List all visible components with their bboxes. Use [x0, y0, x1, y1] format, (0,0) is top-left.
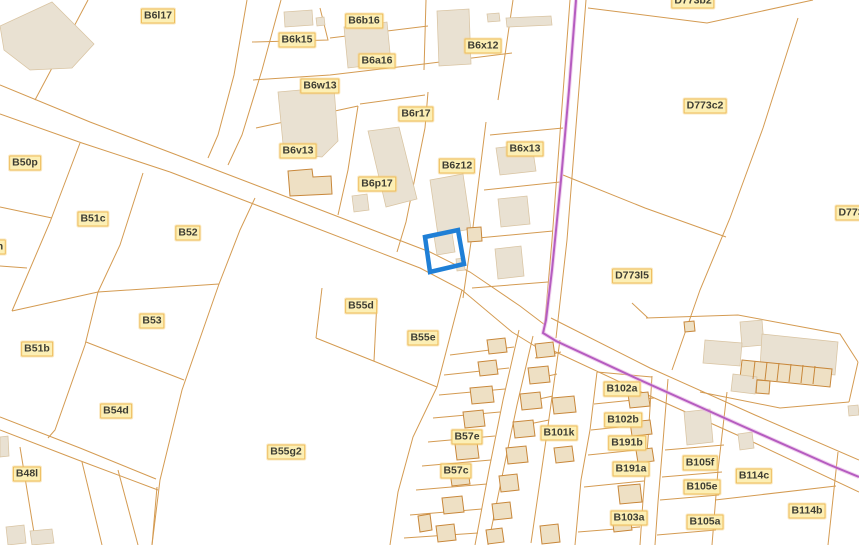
parcel-label-B6w13[interactable]: B6w13 — [300, 79, 339, 94]
parcel-label-B114b[interactable]: B114b — [789, 504, 826, 519]
parcel-label-B105f[interactable]: B105f — [683, 456, 718, 471]
parcel-boundary-line — [0, 266, 27, 268]
parcel-label-B6a16[interactable]: B6a16 — [359, 54, 396, 69]
parcel-label-B6v13[interactable]: B6v13 — [280, 144, 317, 159]
building-footprint — [684, 321, 695, 332]
building-footprint — [513, 420, 535, 438]
building-footprint — [316, 17, 325, 26]
parcel-boundary-line — [849, 362, 858, 402]
parcel-boundary-line — [478, 231, 553, 238]
parcel-label-B191a[interactable]: B191a — [613, 462, 650, 477]
parcel-boundary-line — [82, 462, 102, 545]
parcel-boundary-line — [715, 486, 836, 500]
building-footprint — [463, 410, 485, 428]
parcel-label-B105a[interactable]: B105a — [687, 515, 724, 530]
parcel-boundary-line — [0, 207, 52, 218]
parcel-label-B6x13[interactable]: B6x13 — [507, 142, 544, 157]
building-footprint — [848, 405, 859, 416]
parcel-label-D773c2[interactable]: D773c2 — [684, 99, 727, 114]
building-footprint — [437, 9, 471, 66]
building-footprint — [499, 474, 519, 492]
parcel-label-B6x12[interactable]: B6x12 — [465, 39, 502, 54]
building-footprint — [554, 446, 574, 463]
parcel-label-B105e[interactable]: B105e — [684, 480, 721, 495]
parcel-boundary-line — [437, 290, 462, 387]
parcel-boundary-line — [424, 0, 426, 70]
building-footprint — [535, 342, 555, 358]
building-footprint — [430, 174, 471, 235]
parcel-boundary-line — [316, 288, 322, 338]
building-footprint — [442, 496, 464, 514]
building-footprint — [352, 194, 369, 212]
parcel-label-B102a[interactable]: B102a — [604, 382, 641, 397]
building-footprint — [0, 2, 94, 70]
parcel-boundary-line — [48, 292, 98, 438]
parcel-label-B52[interactable]: B52 — [175, 226, 200, 241]
parcel-label-B57e[interactable]: B57e — [451, 430, 482, 445]
parcel-boundary-line — [444, 368, 509, 375]
parcel-label-B51b[interactable]: B51b — [21, 342, 53, 357]
parcel-label-B55e[interactable]: B55e — [407, 331, 438, 346]
building-footprint — [487, 13, 500, 22]
parcel-boundary-line — [672, 18, 798, 370]
parcel-label-B51c[interactable]: B51c — [77, 212, 108, 227]
parcel-label-B55d[interactable]: B55d — [345, 299, 377, 314]
building-footprint — [528, 366, 550, 384]
parcel-label-B101k[interactable]: B101k — [541, 426, 578, 441]
parcel-label-B55g2[interactable]: B55g2 — [267, 445, 305, 460]
building-footprint — [30, 529, 54, 545]
parcel-label-B50p[interactable]: B50p — [9, 156, 41, 171]
parcel-label-B54d[interactable]: B54d — [100, 404, 132, 419]
building-footprint — [486, 528, 504, 544]
parcel-label-B6b16[interactable]: B6b16 — [345, 14, 383, 29]
parcel-label-B103a[interactable]: B103a — [611, 511, 648, 526]
parcel-boundary-line — [228, 0, 281, 165]
parcel-boundary-line — [12, 292, 98, 311]
building-footprint — [487, 338, 507, 354]
building-footprint — [738, 432, 754, 450]
parcel-boundary-line — [660, 495, 719, 500]
parcel-boundary-line — [575, 372, 597, 545]
building-footprint — [552, 396, 576, 414]
building-footprint — [418, 514, 432, 532]
building-footprint — [470, 386, 494, 404]
parcel-boundary-line — [360, 95, 425, 104]
building-footprint — [740, 320, 764, 347]
parcel-label-B6z12[interactable]: B6z12 — [439, 159, 475, 174]
building-footprint — [684, 409, 713, 445]
parcel-label-B102b[interactable]: B102b — [604, 413, 642, 428]
parcel-boundary-line — [0, 85, 177, 155]
parcel-boundary-line — [208, 0, 247, 158]
parcel-boundary-line — [490, 128, 563, 135]
parcel-boundary-line — [563, 175, 726, 237]
parcel-boundary-line — [98, 284, 219, 292]
parcel-label-B57c[interactable]: B57c — [440, 464, 471, 479]
building-footprint — [618, 484, 642, 504]
parcel-label-B48l[interactable]: B48l — [13, 467, 41, 482]
parcel-boundary-line — [665, 445, 724, 450]
building-footprint — [506, 446, 528, 464]
building-footprint — [6, 525, 26, 545]
parcel-label-B6k15[interactable]: B6k15 — [279, 33, 316, 48]
parcel-label-B6r17[interactable]: B6r17 — [398, 107, 433, 122]
parcel-boundary-line — [472, 282, 548, 288]
building-footprint — [284, 10, 313, 27]
building-footprint — [0, 436, 9, 457]
parcel-boundary-line — [657, 530, 716, 535]
building-footprint — [368, 127, 417, 207]
parcel-boundary-line — [86, 342, 184, 380]
building-footprint — [703, 340, 742, 366]
building-footprint — [495, 246, 524, 279]
parcel-boundary-line — [98, 173, 143, 292]
parcel-label-B53[interactable]: B53 — [139, 314, 164, 329]
parcel-boundary-line — [152, 198, 255, 545]
parcel-label-B114c[interactable]: B114c — [736, 469, 772, 484]
map-canvas[interactable] — [0, 0, 859, 545]
map-viewport[interactable]: B6l17B6b16B6k15B6a16B6x12B6w13B6r17B6v13… — [0, 0, 859, 545]
building-footprint — [478, 360, 498, 376]
parcel-boundary-line — [484, 182, 560, 190]
parcel-boundary-line — [655, 379, 668, 545]
parcel-boundary-line — [632, 303, 648, 318]
building-footprint — [540, 524, 560, 544]
parcel-label-n[interactable]: n — [0, 240, 6, 255]
building-footprint — [498, 196, 530, 227]
building-footprint — [455, 442, 479, 460]
parcel-label-D773l5[interactable]: D773l5 — [612, 269, 652, 284]
parcel-label-B191b[interactable]: B191b — [608, 436, 646, 451]
parcel-label-D773b2[interactable]: D773b2 — [671, 0, 714, 9]
parcel-label-B6l17[interactable]: B6l17 — [141, 9, 175, 24]
building-footprint — [756, 380, 770, 394]
building-footprint — [506, 16, 552, 27]
building-footprint — [520, 392, 542, 410]
building-footprint — [288, 169, 332, 196]
parcel-label-D773[interactable]: D773 — [835, 206, 859, 221]
building-footprint — [492, 502, 512, 520]
parcel-boundary-line — [662, 472, 722, 477]
building-footprint — [467, 227, 482, 242]
parcel-label-B6p17[interactable]: B6p17 — [358, 177, 396, 192]
building-footprint — [436, 524, 456, 542]
